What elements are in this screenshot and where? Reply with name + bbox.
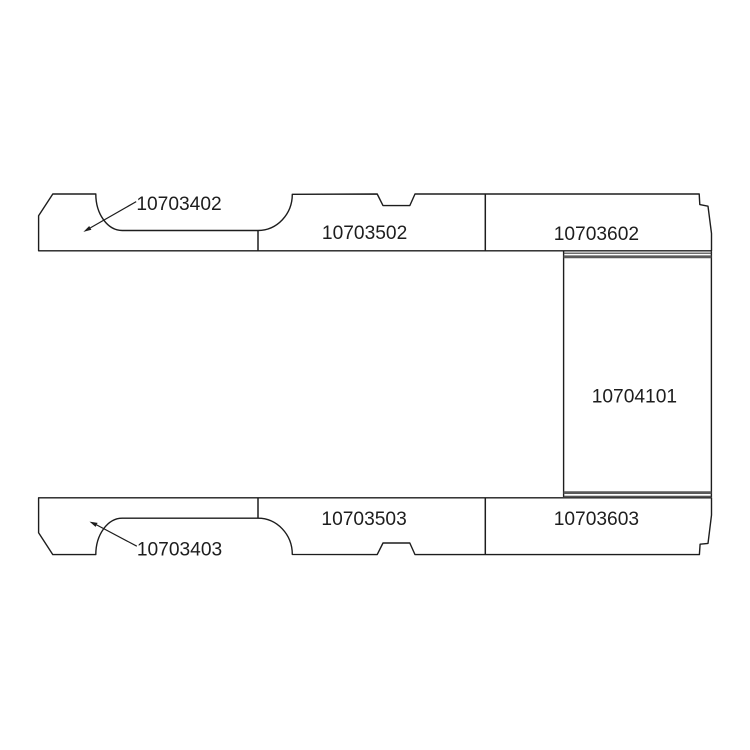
svg-text:10704101: 10704101 [592,386,677,407]
svg-text:10703602: 10703602 [554,224,639,245]
svg-text:10703503: 10703503 [321,509,406,530]
svg-text:10703502: 10703502 [322,223,407,244]
svg-text:10703603: 10703603 [554,509,639,530]
svg-text:10703402: 10703402 [136,194,221,215]
svg-text:10703403: 10703403 [137,540,222,561]
